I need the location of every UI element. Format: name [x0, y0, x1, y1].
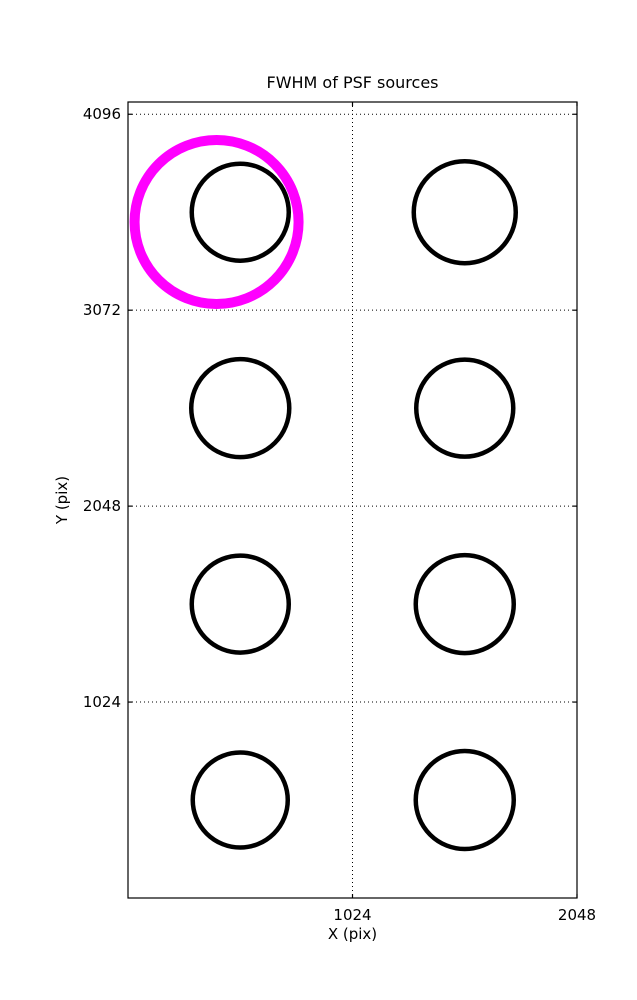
- figure: FWHM of PSF sources Y (pix) X (pix) 1024…: [0, 0, 637, 1000]
- y-tick-label: 3072: [83, 301, 121, 319]
- psf-source-circle: [416, 751, 514, 849]
- plot-area: 102420483072409610242048: [0, 0, 637, 1000]
- psf-source-circle: [193, 753, 288, 848]
- psf-source-circle: [191, 359, 289, 457]
- x-tick-label: 1024: [333, 906, 371, 924]
- y-tick-label: 4096: [83, 105, 121, 123]
- highlight-circle: [135, 140, 299, 304]
- x-tick-label: 2048: [558, 906, 596, 924]
- psf-source-circle: [416, 555, 514, 653]
- y-tick-label: 2048: [83, 497, 121, 515]
- psf-source-circle: [192, 164, 289, 261]
- psf-source-circle: [414, 161, 516, 263]
- psf-source-circle: [192, 556, 289, 653]
- psf-source-circle: [416, 360, 513, 457]
- y-tick-label: 1024: [83, 693, 121, 711]
